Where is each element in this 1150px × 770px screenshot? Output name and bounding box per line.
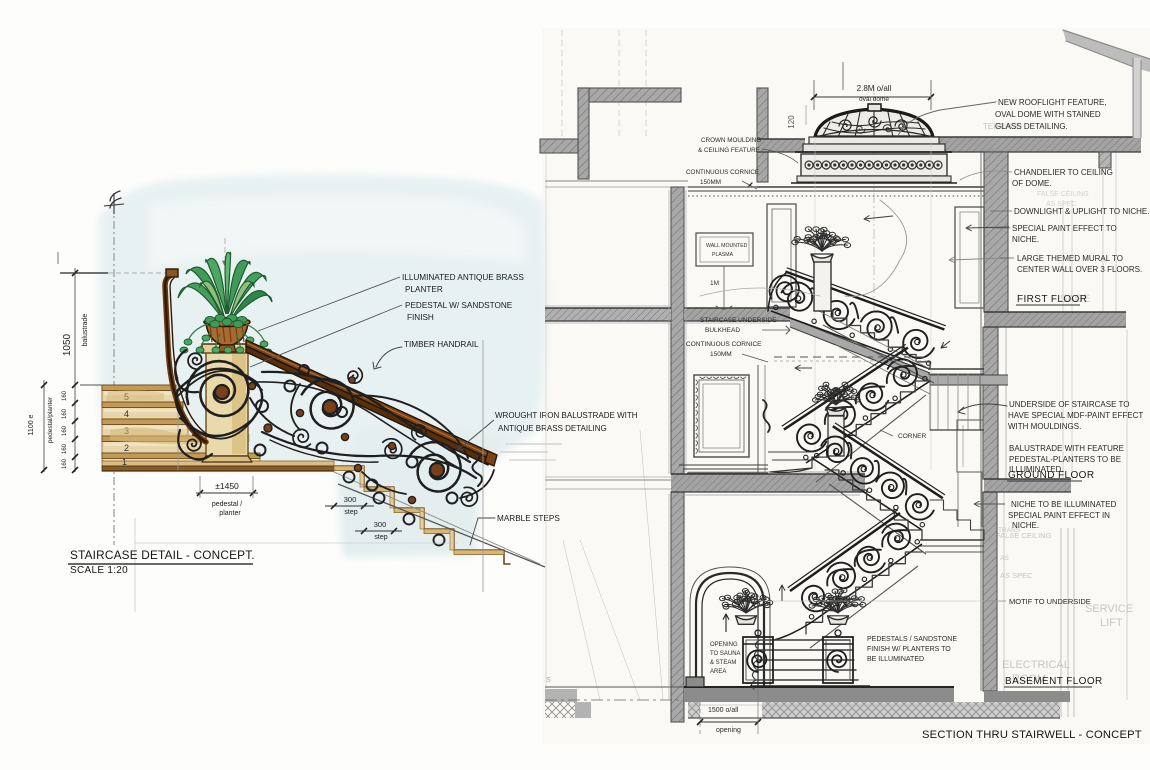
svg-text:step: step — [374, 534, 387, 541]
svg-text:STAIRCASE UNDERSIDE: STAIRCASE UNDERSIDE — [700, 317, 777, 324]
svg-text:WITH MOULDINGS.: WITH MOULDINGS. — [1008, 422, 1081, 431]
svg-text:AS: AS — [1000, 555, 1009, 562]
svg-text:PEDESTALS / SANDSTONE: PEDESTALS / SANDSTONE — [867, 636, 957, 643]
svg-text:150MM: 150MM — [710, 351, 732, 358]
svg-text:opening: opening — [716, 727, 741, 734]
svg-text:PEDESTAL W/ SANDSTONE: PEDESTAL W/ SANDSTONE — [405, 301, 513, 310]
svg-text:balustrade: balustrade — [82, 314, 89, 347]
svg-text:FINISH: FINISH — [407, 313, 434, 322]
svg-text:& CEILING FEATURE: & CEILING FEATURE — [698, 147, 760, 154]
svg-text:±1450: ±1450 — [215, 481, 239, 491]
svg-text:pedestal/planter: pedestal/planter — [47, 396, 54, 443]
svg-text:DOWNLIGHT & UPLIGHT TO NICHE.: DOWNLIGHT & UPLIGHT TO NICHE. — [1014, 207, 1149, 216]
svg-text:MARBLE STEPS: MARBLE STEPS — [497, 514, 560, 523]
svg-text:160: 160 — [62, 390, 68, 401]
svg-text:HAVE SPECIAL MDF-PAINT EFFECT: HAVE SPECIAL MDF-PAINT EFFECT — [1008, 411, 1143, 420]
svg-text:step: step — [344, 509, 357, 516]
svg-text:4: 4 — [124, 409, 129, 419]
svg-text:300: 300 — [374, 520, 387, 529]
svg-text:CORNER: CORNER — [898, 433, 926, 440]
svg-text:AREA: AREA — [710, 669, 726, 675]
svg-text:OVAL DOME WITH STAINED: OVAL DOME WITH STAINED — [995, 110, 1101, 119]
svg-text:CONTINUOUS CORNICE: CONTINUOUS CORNICE — [686, 341, 762, 348]
svg-text:AS SPEC: AS SPEC — [1000, 571, 1033, 580]
svg-text:160: 160 — [62, 443, 68, 454]
svg-text:CROWN MOULDING: CROWN MOULDING — [701, 137, 761, 144]
svg-text:pedestal /: pedestal / — [212, 501, 242, 508]
svg-text:CONTINUOUS CORNICE: CONTINUOUS CORNICE — [686, 169, 759, 176]
svg-text:NICHE.: NICHE. — [1012, 235, 1039, 244]
svg-text:GLASS DETAILING.: GLASS DETAILING. — [995, 122, 1068, 131]
svg-text:NEW ROOFLIGHT FEATURE,: NEW ROOFLIGHT FEATURE, — [998, 98, 1107, 107]
svg-text:S: S — [546, 677, 551, 684]
svg-text:1500 o/all: 1500 o/all — [708, 707, 739, 714]
svg-text:TIMBER HANDRAIL: TIMBER HANDRAIL — [404, 340, 479, 349]
svg-text:PLANTER: PLANTER — [405, 285, 443, 294]
svg-text:160: 160 — [62, 458, 68, 469]
svg-text:2.8M o/all: 2.8M o/all — [857, 84, 892, 93]
svg-text:FIRST FLOOR: FIRST FLOOR — [1017, 294, 1087, 305]
svg-text:1100 e: 1100 e — [28, 414, 35, 435]
svg-text:LIFT: LIFT — [1100, 617, 1123, 629]
svg-text:BE ILLUMINATED: BE ILLUMINATED — [867, 656, 924, 663]
svg-text:120: 120 — [787, 115, 796, 129]
svg-text:160: 160 — [62, 425, 68, 436]
svg-text:BASEMENT FLOOR: BASEMENT FLOOR — [1005, 676, 1103, 687]
svg-text:LARGE THEMED MURAL TO: LARGE THEMED MURAL TO — [1017, 254, 1123, 263]
svg-text:ANTIQUE BRASS DETAILING: ANTIQUE BRASS DETAILING — [498, 424, 607, 433]
svg-text:GROUND FLOOR: GROUND FLOOR — [1008, 470, 1094, 481]
svg-text:SECTION THRU STAIRWELL - CONCE: SECTION THRU STAIRWELL - CONCEPT — [922, 729, 1142, 741]
svg-text:1050: 1050 — [62, 333, 73, 356]
svg-text:1: 1 — [122, 457, 127, 467]
svg-text:SCALE 1:20: SCALE 1:20 — [70, 565, 128, 576]
svg-text:SERVICE: SERVICE — [1085, 603, 1133, 615]
svg-text:CHANDELIER TO CEILING: CHANDELIER TO CEILING — [1014, 168, 1113, 177]
svg-text:TO SAUNA: TO SAUNA — [710, 651, 741, 657]
svg-text:SPECIAL PAINT EFFECT TO: SPECIAL PAINT EFFECT TO — [1012, 224, 1117, 233]
svg-text:UNDERSIDE OF STAIRCASE TO: UNDERSIDE OF STAIRCASE TO — [1009, 400, 1129, 409]
svg-text:ELECTRICAL: ELECTRICAL — [1002, 659, 1070, 671]
svg-text:FALSE CEILING: FALSE CEILING — [1037, 191, 1089, 198]
svg-text:NICHE.: NICHE. — [1012, 521, 1039, 530]
svg-text:OF DOME.: OF DOME. — [1012, 179, 1052, 188]
svg-text:NICHE TO BE ILLUMINATED: NICHE TO BE ILLUMINATED — [1011, 500, 1117, 509]
svg-text:MOTIF TO UNDERSIDE: MOTIF TO UNDERSIDE — [1009, 597, 1091, 606]
svg-text:FINISH W/ PLANTERS TO: FINISH W/ PLANTERS TO — [867, 646, 951, 653]
svg-text:160: 160 — [62, 408, 68, 419]
svg-text:WALL MOUNTED: WALL MOUNTED — [706, 243, 748, 249]
svg-text:planter: planter — [219, 510, 241, 517]
svg-text:OPENING: OPENING — [710, 642, 738, 648]
svg-text:1M: 1M — [710, 280, 719, 287]
svg-text:2: 2 — [124, 443, 129, 453]
svg-text:WROUGHT IRON BALUSTRADE WITH: WROUGHT IRON BALUSTRADE WITH — [495, 411, 638, 420]
svg-text:STAIRCASE DETAIL - CONCEPT.: STAIRCASE DETAIL - CONCEPT. — [70, 548, 255, 562]
svg-text:PLASMA: PLASMA — [712, 252, 734, 258]
svg-text:PEDESTAL-PLANTERS TO BE: PEDESTAL-PLANTERS TO BE — [1009, 455, 1121, 464]
svg-text:300: 300 — [344, 495, 357, 504]
svg-text:BULKHEAD: BULKHEAD — [705, 327, 740, 334]
svg-text:CENTER WALL OVER 3 FLOORS.: CENTER WALL OVER 3 FLOORS. — [1017, 265, 1142, 274]
svg-text:SPECIAL PAINT EFFECT IN: SPECIAL PAINT EFFECT IN — [1008, 511, 1110, 520]
svg-text:150MM: 150MM — [700, 179, 721, 186]
svg-text:ILLUMINATED ANTIQUE BRASS: ILLUMINATED ANTIQUE BRASS — [402, 273, 524, 282]
svg-text:& STEAM: & STEAM — [710, 660, 736, 666]
svg-text:BALUSTRADE WITH FEATURE: BALUSTRADE WITH FEATURE — [1009, 444, 1124, 453]
